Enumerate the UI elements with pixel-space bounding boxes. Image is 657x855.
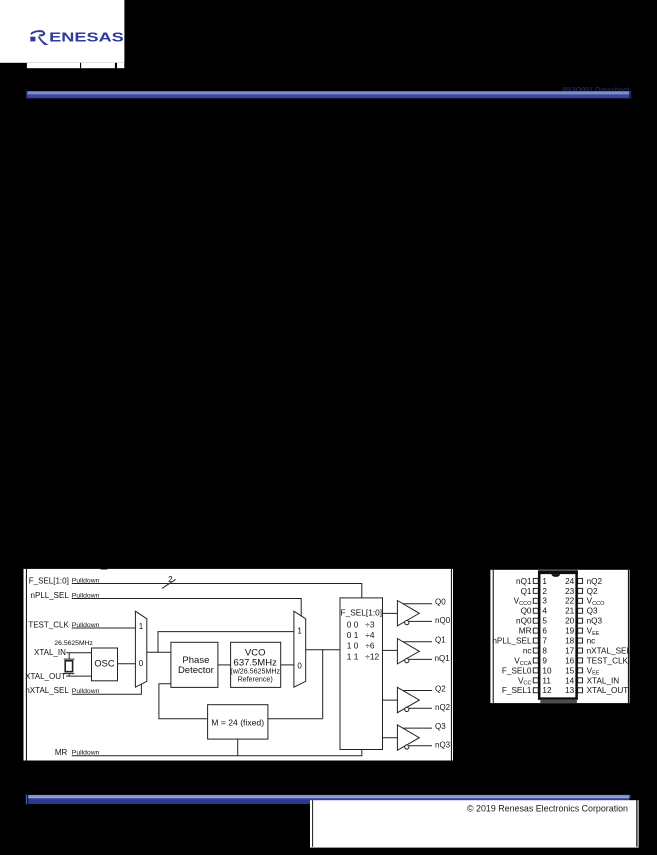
svg-text:nc: nc xyxy=(587,636,596,645)
svg-text:23: 23 xyxy=(565,587,575,596)
svg-text:18: 18 xyxy=(565,636,575,645)
svg-text:21: 21 xyxy=(565,607,575,616)
svg-text:12: 12 xyxy=(542,686,552,695)
svg-text:÷4: ÷4 xyxy=(365,630,375,640)
svg-text:Q2: Q2 xyxy=(587,587,598,596)
svg-text:MR: MR xyxy=(55,748,68,757)
svg-text:XTAL_IN: XTAL_IN xyxy=(587,676,620,685)
svg-text:XTAL_OUT: XTAL_OUT xyxy=(587,686,629,695)
svg-text:10: 10 xyxy=(542,666,552,675)
svg-text:nQ0: nQ0 xyxy=(516,617,532,626)
svg-text:2: 2 xyxy=(168,575,173,584)
svg-text:Q0: Q0 xyxy=(435,598,446,607)
svg-text:nQ3: nQ3 xyxy=(587,617,603,626)
svg-text:26.5625MHz: 26.5625MHz xyxy=(54,640,93,647)
svg-text:19: 19 xyxy=(565,627,575,636)
svg-text:÷12: ÷12 xyxy=(365,651,379,661)
svg-text:nc: nc xyxy=(523,646,532,655)
svg-text:24: 24 xyxy=(565,577,575,586)
svg-text:÷3: ÷3 xyxy=(365,619,375,629)
svg-text:Phase: Phase xyxy=(182,655,209,666)
svg-text:MR: MR xyxy=(519,627,532,636)
svg-text:© 2019 Renesas Electronics Cor: © 2019 Renesas Electronics Corporation xyxy=(467,803,628,813)
svg-text:8: 8 xyxy=(542,646,547,655)
svg-text:F_SEL1: F_SEL1 xyxy=(502,686,532,695)
svg-text:20: 20 xyxy=(565,617,575,626)
svg-text:1 1: 1 1 xyxy=(347,651,359,661)
svg-text:F_SEL[1:0]: F_SEL[1:0] xyxy=(341,608,383,618)
svg-text:Q3: Q3 xyxy=(435,722,446,731)
svg-text:13: 13 xyxy=(565,686,575,695)
svg-text:Pulldown: Pulldown xyxy=(72,577,100,584)
svg-text:OSC: OSC xyxy=(94,659,114,669)
svg-text:nXTAL_SEL: nXTAL_SEL xyxy=(587,646,632,655)
svg-text:Detector: Detector xyxy=(178,665,214,676)
svg-text:0: 0 xyxy=(139,659,144,668)
svg-text:Q1: Q1 xyxy=(435,636,446,645)
svg-text:TEST_CLK: TEST_CLK xyxy=(28,621,69,630)
svg-text:F_SEL[1:0]: F_SEL[1:0] xyxy=(29,577,69,586)
svg-text:nXTAL_SEL: nXTAL_SEL xyxy=(25,686,69,695)
svg-text:TEST_CLK: TEST_CLK xyxy=(587,656,629,665)
svg-text:Pulldown: Pulldown xyxy=(72,622,100,629)
svg-text:16: 16 xyxy=(565,656,575,665)
svg-text:M = 24 (fixed): M = 24 (fixed) xyxy=(211,718,264,728)
svg-text:nQ1: nQ1 xyxy=(516,577,532,586)
svg-text:F_SEL0: F_SEL0 xyxy=(502,666,532,675)
svg-text:nQ1: nQ1 xyxy=(435,654,451,663)
svg-text:11: 11 xyxy=(542,676,551,685)
svg-text:1: 1 xyxy=(542,577,547,586)
svg-text:0 1: 0 1 xyxy=(347,630,359,640)
svg-text:3: 3 xyxy=(542,597,547,606)
svg-text:nQ0: nQ0 xyxy=(435,616,451,625)
svg-text:1 0: 1 0 xyxy=(347,641,359,651)
svg-text:0: 0 xyxy=(297,662,302,671)
svg-text:22: 22 xyxy=(565,597,575,606)
svg-text:0 0: 0 0 xyxy=(347,619,359,629)
svg-text:XTAL_OUT: XTAL_OUT xyxy=(25,672,66,681)
svg-text:nQ3: nQ3 xyxy=(435,741,451,750)
svg-text:Q2: Q2 xyxy=(435,685,446,694)
svg-text:Pulldown: Pulldown xyxy=(72,592,100,599)
svg-text:17: 17 xyxy=(565,646,575,655)
svg-text:nQ2: nQ2 xyxy=(435,703,451,712)
svg-text:nPLL_SEL: nPLL_SEL xyxy=(31,591,70,600)
svg-text:5: 5 xyxy=(542,617,547,626)
svg-text:Q3: Q3 xyxy=(587,607,598,616)
svg-text:XTAL_IN: XTAL_IN xyxy=(34,648,66,657)
svg-text:4: 4 xyxy=(542,607,547,616)
svg-text:2: 2 xyxy=(542,587,547,596)
svg-text:15: 15 xyxy=(565,666,575,675)
svg-text:÷6: ÷6 xyxy=(365,641,375,651)
svg-text:ENESAS: ENESAS xyxy=(49,30,124,44)
svg-text:1: 1 xyxy=(297,626,302,635)
svg-text:6: 6 xyxy=(542,627,547,636)
svg-text:nPLL_SEL: nPLL_SEL xyxy=(492,636,532,645)
svg-text:14: 14 xyxy=(565,676,575,685)
svg-text:Reference): Reference) xyxy=(238,676,273,684)
svg-text:Pulldown: Pulldown xyxy=(72,750,100,757)
svg-text:Pulldown: Pulldown xyxy=(72,688,100,695)
svg-text:7: 7 xyxy=(542,636,547,645)
svg-text:nQ2: nQ2 xyxy=(587,577,603,586)
svg-text:1: 1 xyxy=(139,622,144,631)
svg-text:(w/26.5625MHz: (w/26.5625MHz xyxy=(230,668,280,676)
svg-text:Q0: Q0 xyxy=(521,607,532,616)
svg-text:Q1: Q1 xyxy=(521,587,532,596)
svg-text:9: 9 xyxy=(542,656,547,665)
